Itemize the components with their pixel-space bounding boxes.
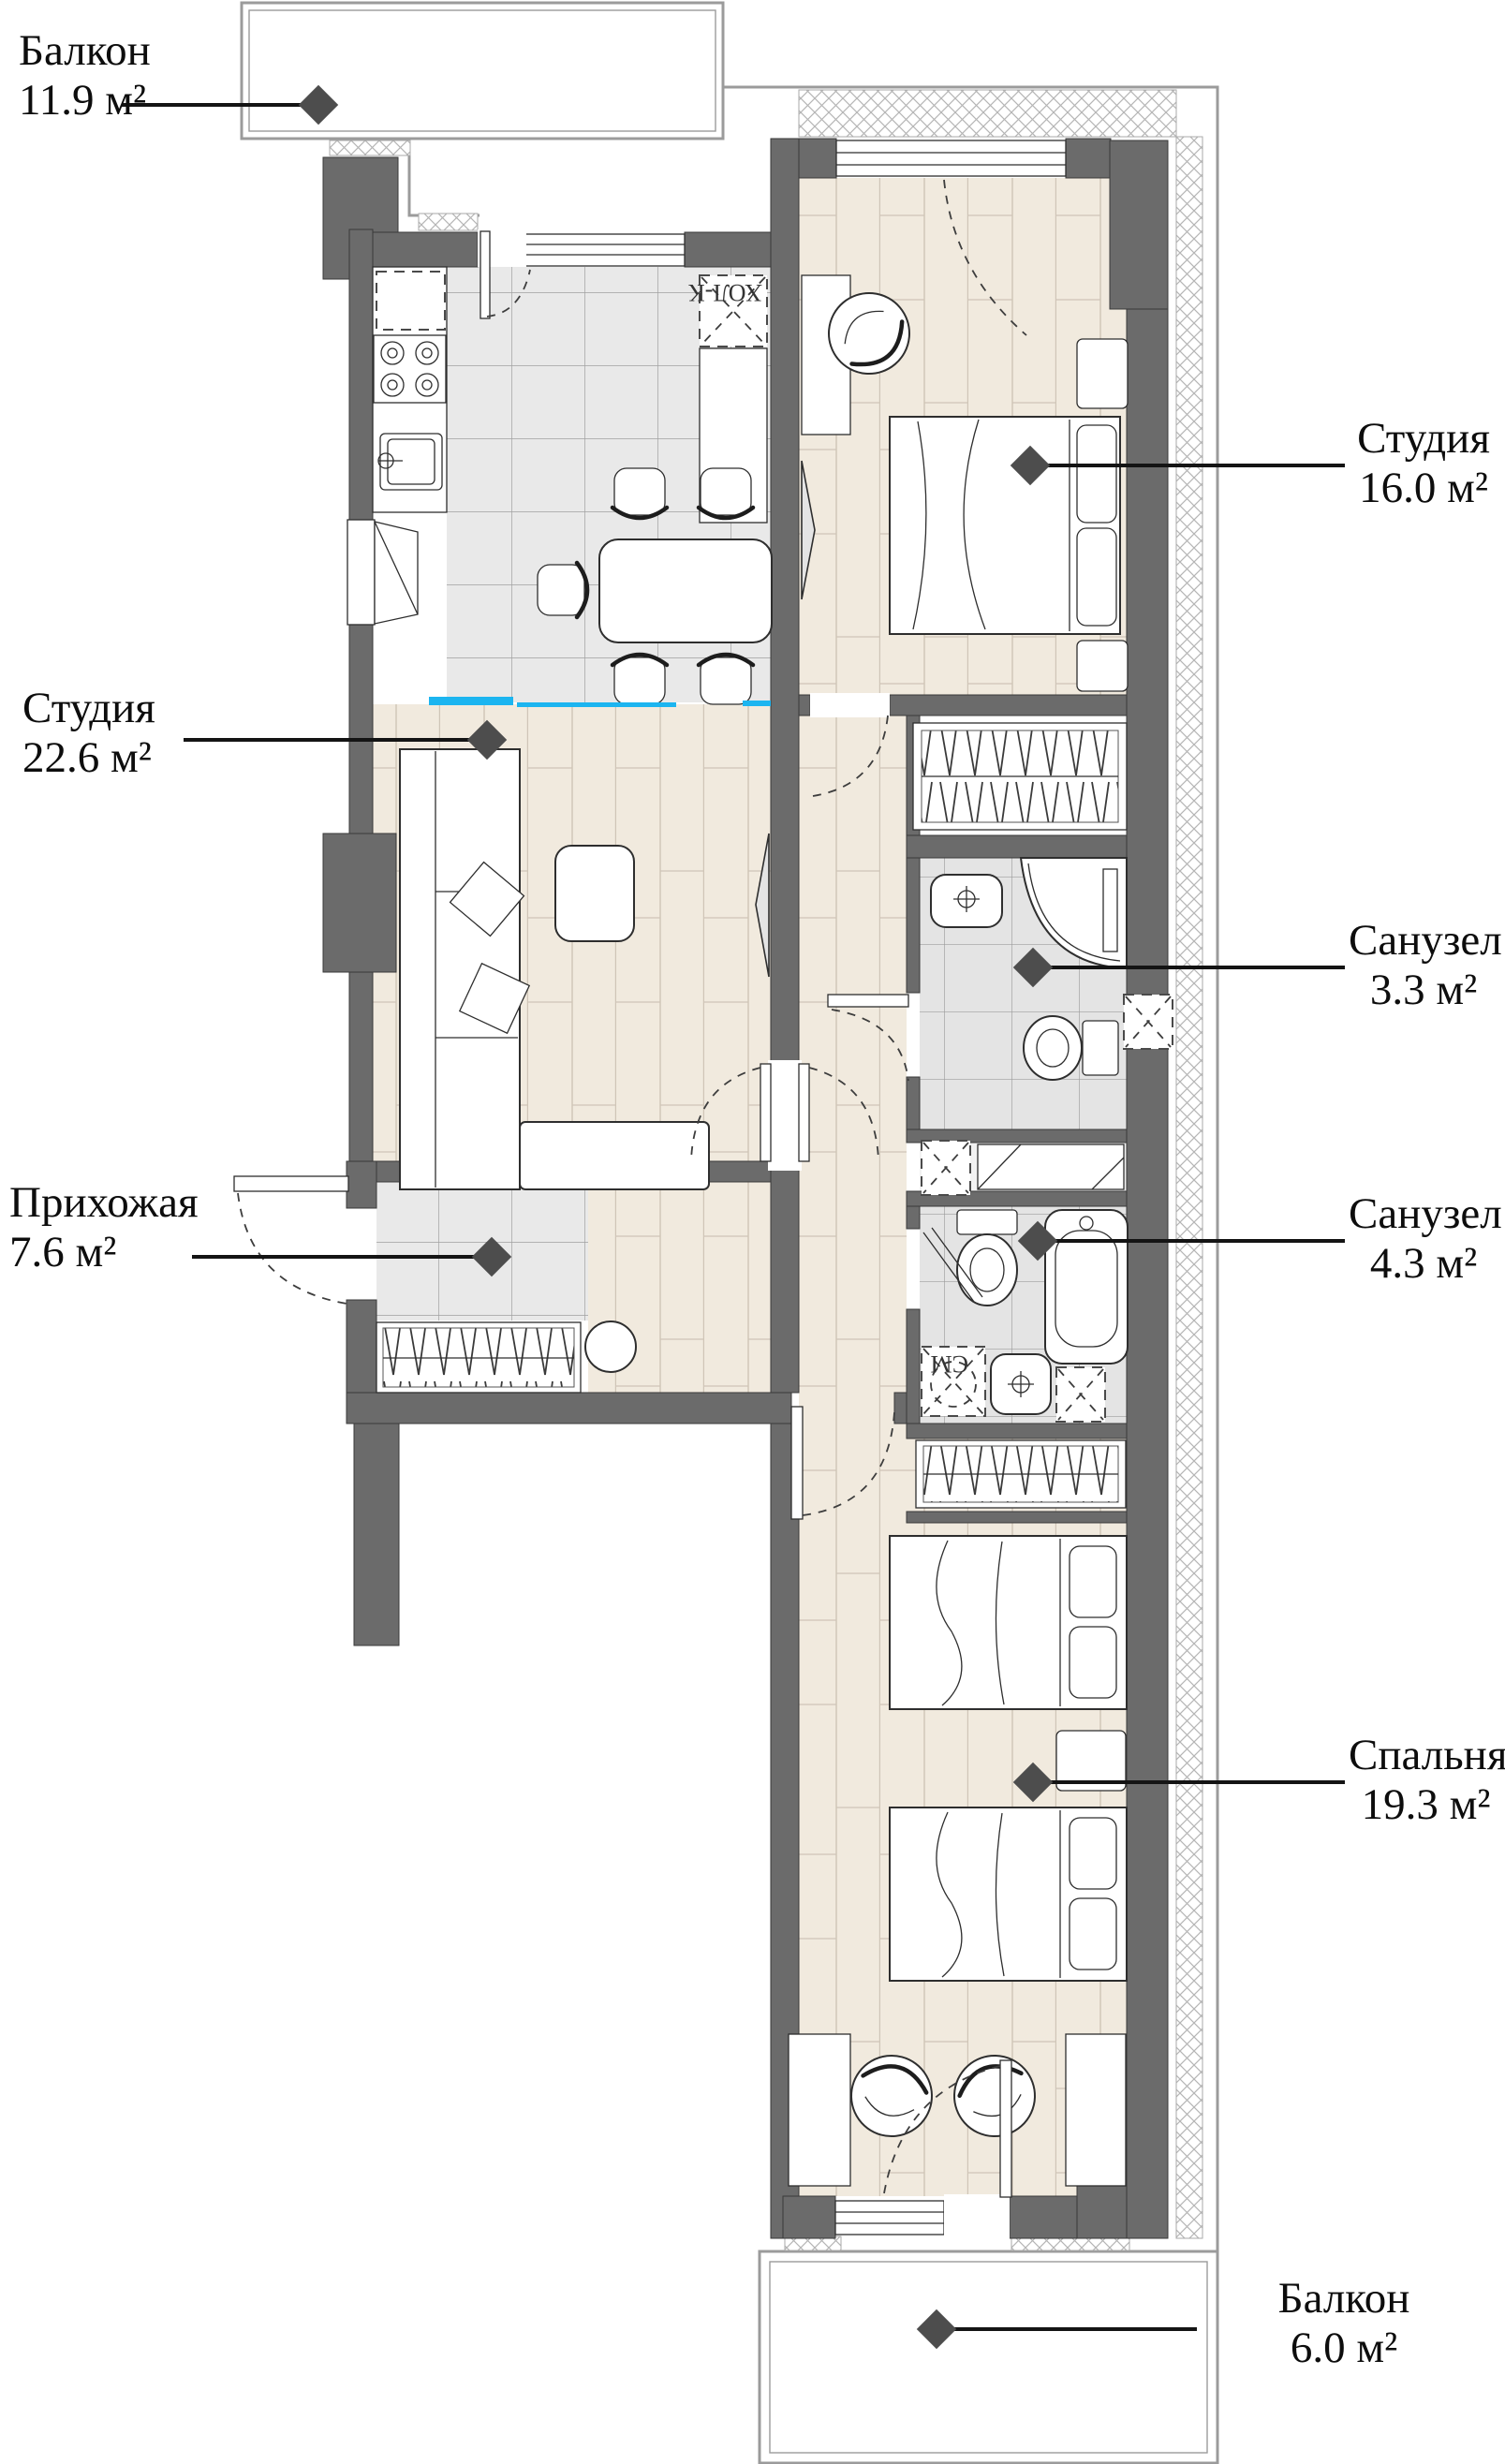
stove-icon	[374, 335, 446, 403]
wardrobe-hall	[376, 1322, 581, 1393]
balcony-door	[1000, 2060, 1011, 2197]
kitchen-balcony-door	[480, 231, 490, 318]
kitchen-corner-cabinet	[376, 272, 445, 330]
wall-hall-bottom	[347, 1393, 791, 1424]
wardrobe-top	[913, 723, 1127, 830]
wall-right	[1127, 309, 1168, 2238]
floor-transition-accent	[429, 697, 513, 705]
fridge-label: ХОЛ-К	[688, 279, 762, 306]
floor-plan: ХОЛ-К	[0, 0, 1505, 2464]
entry-door-jamb-top	[347, 1161, 376, 1208]
nightstand-icon	[1077, 641, 1128, 691]
wall-middle-lower	[771, 1169, 799, 1393]
double-door-leaf	[799, 1064, 809, 1161]
washing-machine-icon: СМ	[922, 1347, 985, 1416]
label-studio22: Студия 22.6 м²	[22, 684, 155, 782]
toilet-icon	[1024, 1016, 1118, 1080]
washer-label: СМ	[931, 1350, 968, 1378]
chair-icon	[699, 468, 753, 518]
label-bedroom: Спальня 19.3 м²	[1349, 1731, 1503, 1829]
entry-door	[234, 1176, 348, 1191]
kitchen-window	[524, 234, 685, 266]
chair-icon	[612, 655, 667, 704]
bedroom-desk	[1066, 2034, 1126, 2186]
label-hallway: Прихожая 7.6 м²	[9, 1178, 199, 1276]
label-bathroom4: Санузел 4.3 м²	[1349, 1189, 1498, 1288]
chair-icon	[538, 563, 587, 617]
bathtub-icon	[1045, 1210, 1128, 1364]
bed-icon	[890, 1807, 1127, 1981]
wall-studio16-top-a	[799, 139, 836, 178]
fridge-icon: ХОЛ-К	[688, 275, 767, 347]
wall-kitchen-top-a	[373, 232, 478, 267]
chair-icon	[612, 468, 667, 518]
wall-pylon-top-right	[1110, 140, 1168, 309]
wall-studio16-top-b	[1066, 139, 1111, 178]
insulation-hatch	[330, 140, 410, 155]
balcony-bottom-outline	[760, 2251, 1217, 2463]
wall-pylon-bottom-left	[354, 1424, 399, 1645]
bedroom-door	[791, 1407, 803, 1519]
bedroom-window	[835, 2201, 944, 2235]
wardrobe-middle	[916, 1440, 1126, 1508]
pouf-icon	[585, 1321, 636, 1372]
label-balcony-bottom: Балкон 6.0 м²	[1208, 2274, 1480, 2372]
marker-balcony-top	[299, 85, 338, 125]
studio16-bed-icon	[890, 417, 1120, 634]
label-balcony-top: Балкон 11.9 м²	[19, 26, 151, 125]
shaft-icon	[922, 1141, 970, 1195]
wall-wardrobe1-bottom	[907, 835, 1127, 858]
bath3-door	[828, 995, 908, 1007]
coffee-table-icon	[555, 846, 634, 941]
bath3-sink-icon	[931, 875, 1002, 927]
entry-door-swing	[238, 1193, 347, 1304]
label-studio16: Студия 16.0 м²	[1349, 414, 1498, 512]
wall-pylon-left	[323, 834, 396, 972]
dining-table-icon	[599, 539, 772, 642]
entry	[234, 1176, 348, 1304]
wall-studio16-bottom	[890, 695, 1127, 716]
shaft-icon	[1056, 1367, 1105, 1422]
entry-door-jamb-bottom	[347, 1300, 376, 1393]
wall-left-upper	[349, 229, 373, 520]
floor-plan-drawing: ХОЛ-К	[0, 0, 1505, 2464]
pillow-icon	[1077, 528, 1116, 626]
wall-middle-upper	[771, 139, 799, 1063]
label-bathroom3: Санузел 3.3 м²	[1349, 916, 1498, 1014]
bath4-sink-icon	[991, 1354, 1051, 1414]
nightstand-icon	[1077, 339, 1128, 408]
bedroom-desk	[789, 2034, 850, 2186]
shaft-icon	[1124, 995, 1173, 1049]
pillow-icon	[1077, 425, 1116, 523]
living-window	[347, 520, 418, 625]
chair-icon	[699, 655, 753, 704]
double-door-leaf	[760, 1064, 771, 1161]
bed-icon	[890, 1536, 1127, 1709]
kitchen-sink-icon	[378, 434, 442, 490]
marker-balcony-bottom	[917, 2309, 956, 2349]
shelf-niche	[922, 1141, 1124, 1195]
wall-kitchen-top-b	[685, 232, 771, 267]
